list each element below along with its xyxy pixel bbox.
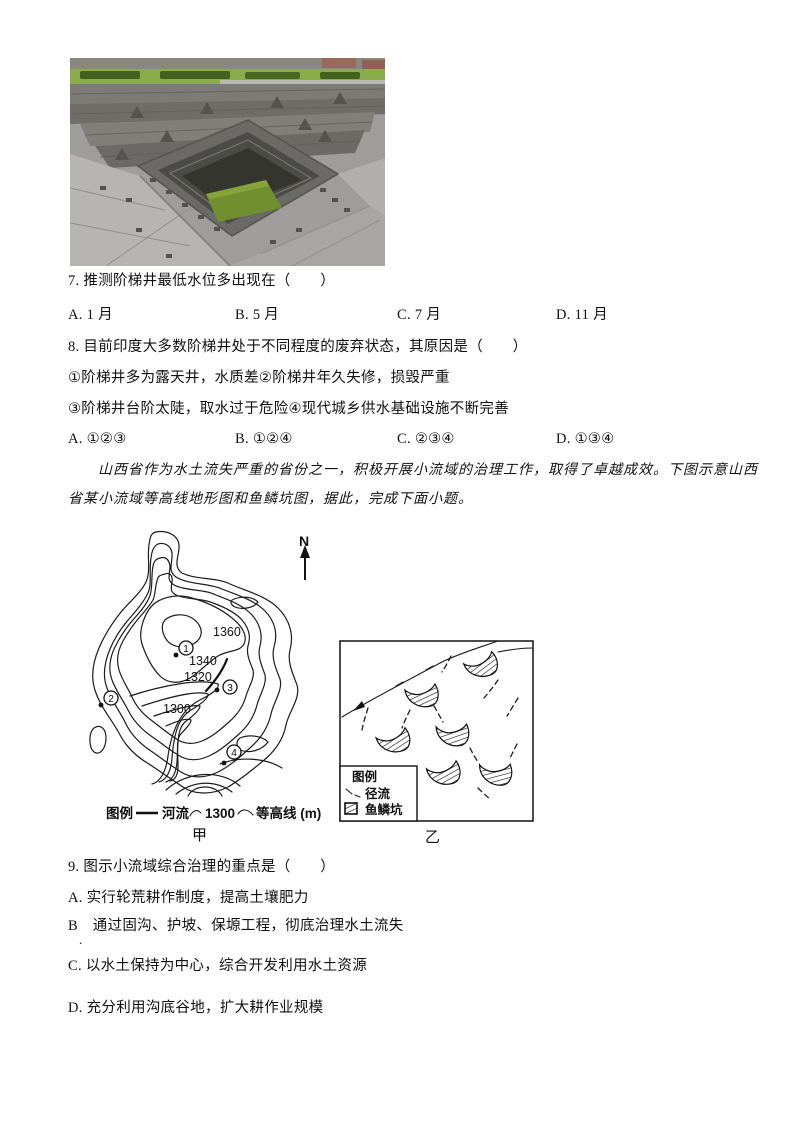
fishscale-legend-title: 图例 xyxy=(352,769,377,784)
svg-text:3: 3 xyxy=(227,683,233,694)
q8-item-2: ③阶梯井台阶太陡，取水过于危险④现代城乡供水基础设施不断完善 xyxy=(68,400,509,419)
q9-option-b[interactable]: B 通过固沟、护坡、保塬工程，彻底治理水土流失 xyxy=(68,917,404,936)
map-caption: 甲 xyxy=(192,827,207,843)
label-1360: 1360 xyxy=(213,625,241,639)
q7-option-b[interactable]: B. 5 月 xyxy=(235,306,279,325)
stepwell-photo xyxy=(70,58,385,266)
contour-line-icon xyxy=(238,810,253,815)
fishscale-caption: 乙 xyxy=(425,829,440,846)
fishscale-legend-runoff: 径流 xyxy=(365,786,391,801)
q9-stem: 9. 图示小流域综合治理的重点是（ ） xyxy=(68,858,335,877)
pit-legend-icon xyxy=(345,803,357,814)
exam-page: 7. 推测阶梯井最低水位多出现在（ ） A. 1 月 B. 5 月 C. 7 月… xyxy=(0,0,794,1123)
passage-line-2: 省某小流域等高线地形图和鱼鳞坑图，据此，完成下面小题。 xyxy=(68,490,473,509)
fishscale-legend: 图例 径流 鱼鳞坑 xyxy=(340,766,417,821)
q7-option-a[interactable]: A. 1 月 xyxy=(68,306,113,325)
label-1320: 1320 xyxy=(184,670,212,684)
label-1300: 1300 xyxy=(163,702,191,716)
map-legend-contour-value: 1300 xyxy=(205,806,235,821)
q8-item-1: ①阶梯井多为露天井，水质差②阶梯井年久失修，损毁严重 xyxy=(68,369,450,388)
map-legend-title: 图例 xyxy=(106,805,133,821)
label-1340: 1340 xyxy=(189,654,217,668)
map-point-4: 4 xyxy=(222,745,241,765)
map-legend-river: 河流 xyxy=(162,805,189,821)
q8-option-c[interactable]: C. ②③④ xyxy=(397,430,455,449)
q8-option-a[interactable]: A. ①②③ xyxy=(68,430,127,449)
svg-text:1: 1 xyxy=(183,644,189,655)
map-legend: 图例 河流 1300 等高线 (m) xyxy=(106,805,321,821)
q8-option-d[interactable]: D. ①③④ xyxy=(556,430,615,449)
svg-text:4: 4 xyxy=(231,748,237,759)
q7-stem: 7. 推测阶梯井最低水位多出现在（ ） xyxy=(68,272,335,291)
q7-option-c[interactable]: C. 7 月 xyxy=(397,306,441,325)
fishscale-legend-pit: 鱼鳞坑 xyxy=(365,802,403,817)
passage-line-1: 山西省作为水土流失严重的省份之一，积极开展小流域的治理工作，取得了卓越成效。下图… xyxy=(68,461,758,480)
svg-text:N: N xyxy=(299,533,309,549)
q7-option-d[interactable]: D. 11 月 xyxy=(556,306,608,325)
svg-text:2: 2 xyxy=(108,694,114,705)
q8-option-b[interactable]: B. ①②④ xyxy=(235,430,293,449)
q8-stem: 8. 目前印度大多数阶梯井处于不同程度的废弃状态，其原因是（ ） xyxy=(68,338,527,357)
fishscale-diagram: 图例 径流 鱼鳞坑 乙 xyxy=(338,638,538,848)
contour-map: N 1360 1340 1320 1300 xyxy=(70,528,340,843)
q9-option-c[interactable]: C. 以水土保持为中心，综合开发利用水土资源 xyxy=(68,957,367,976)
q9-option-d[interactable]: D. 充分利用沟底谷地，扩大耕作业规模 xyxy=(68,999,323,1018)
q9-stray-period: . xyxy=(79,930,83,949)
q9-option-a[interactable]: A. 实行轮荒耕作制度，提高土壤肥力 xyxy=(68,889,309,908)
map-legend-contour: 等高线 (m) xyxy=(256,805,321,821)
contour-number-icon xyxy=(190,811,201,816)
north-arrow-icon: N xyxy=(299,533,310,580)
